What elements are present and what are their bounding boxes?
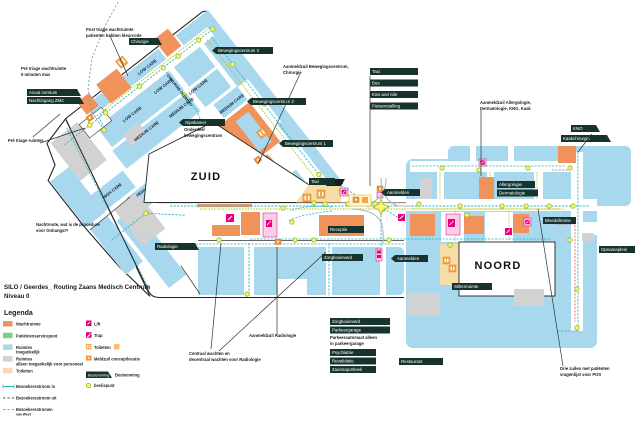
svg-text:Meldzuil conceptlocatie: Meldzuil conceptlocatie [94, 357, 141, 362]
svg-text:Dermatologie: Dermatologie [499, 191, 526, 196]
svg-text:Dermatologie, KNO, Kaak: Dermatologie, KNO, Kaak [480, 106, 531, 111]
svg-text:Restaurant: Restaurant [401, 359, 423, 364]
svg-text:Bezoekersstroom in: Bezoekersstroom in [16, 384, 56, 389]
svg-text:toegankelijk: toegankelijk [16, 350, 40, 355]
svg-text:van West: van West [16, 413, 32, 417]
svg-text:Fietsenstalling: Fietsenstalling [372, 104, 401, 109]
svg-text:Nachtroute, wat is de procedur: Nachtroute, wat is de procedure [36, 222, 100, 227]
svg-text:Post triage wachtruimte: Post triage wachtruimte [86, 27, 134, 32]
svg-text:Taxi: Taxi [311, 179, 319, 184]
svg-text:Receptie: Receptie [330, 227, 348, 232]
svg-text:Bezoekersstroom uit: Bezoekersstroom uit [16, 396, 57, 401]
svg-text:Aanmeldzuil Bewegingscentrum,: Aanmeldzuil Bewegingscentrum, [283, 64, 349, 69]
svg-text:Legenda: Legenda [4, 310, 33, 317]
svg-text:Wachtruimte: Wachtruimte [16, 322, 41, 327]
svg-text:Drie zuilen met patiënten: Drie zuilen met patiënten [560, 366, 610, 371]
svg-text:Zorgboulevard: Zorgboulevard [332, 319, 361, 324]
svg-text:alleen toegankelijk voor perso: alleen toegankelijk voor personeel [16, 361, 83, 366]
svg-text:Bestemming: Bestemming [115, 372, 140, 377]
svg-text:5 minuten max: 5 minuten max [21, 72, 51, 77]
svg-text:Kiss and ride: Kiss and ride [372, 92, 398, 97]
svg-text:Aanmeldzuil Radiologie: Aanmeldzuil Radiologie [249, 333, 297, 338]
svg-text:Chirurgie: Chirurgie [283, 70, 302, 75]
svg-text:Taxi: Taxi [372, 69, 380, 74]
svg-text:Allergologie: Allergologie [499, 182, 523, 187]
svg-text:Pré triage wachtruimte: Pré triage wachtruimte [21, 66, 67, 71]
svg-text:voor Onhangst?: voor Onhangst? [36, 228, 69, 233]
svg-text:Bewegingscentrum 3: Bewegingscentrum 3 [218, 48, 260, 53]
svg-text:Pré triage ruimtes: Pré triage ruimtes [8, 138, 44, 143]
svg-text:Bloedafname: Bloedafname [545, 218, 571, 223]
svg-text:Niveau 0: Niveau 0 [4, 293, 30, 300]
svg-text:NOORD: NOORD [475, 260, 522, 272]
svg-text:Aanmelden: Aanmelden [387, 190, 410, 195]
svg-text:bewegingscentrum: bewegingscentrum [184, 133, 222, 138]
svg-text:Toiletten: Toiletten [94, 345, 111, 350]
svg-text:ZUID: ZUID [191, 171, 221, 183]
svg-text:Parkeergarage: Parkeergarage [332, 328, 362, 333]
svg-text:Lift: Lift [94, 322, 101, 327]
svg-text:Trap: Trap [94, 333, 103, 338]
svg-text:Parkeerautomaat alleen: Parkeerautomaat alleen [330, 335, 377, 340]
svg-text:Bezoekersstromen: Bezoekersstromen [16, 407, 53, 412]
svg-text:Zaansapotheek: Zaansapotheek [332, 367, 363, 372]
svg-text:Aanmeldzuil Allergologie,: Aanmeldzuil Allergologie, [480, 100, 531, 105]
svg-text:Stiltenruimte: Stiltenruimte [454, 284, 479, 289]
svg-text:Patiëntenservicepunt: Patiëntenservicepunt [16, 333, 58, 338]
svg-text:Onderdeel: Onderdeel [184, 127, 205, 132]
svg-text:Bestemming: Bestemming [88, 373, 109, 377]
svg-text:Toiletten: Toiletten [16, 368, 33, 373]
svg-text:Centraal wachten en: Centraal wachten en [189, 351, 230, 356]
svg-text:Aanmelden: Aanmelden [397, 256, 420, 261]
svg-text:Psychiatrie: Psychiatrie [332, 350, 354, 355]
svg-text:Bus: Bus [372, 81, 380, 86]
svg-text:Radiologie: Radiologie [157, 244, 178, 249]
svg-text:Opnameplein: Opnameplein [601, 247, 628, 252]
svg-text:KNO: KNO [573, 126, 583, 131]
svg-text:vragenlijst voor POS: vragenlijst voor POS [560, 372, 601, 377]
svg-text:SILO / Geerdes_ Routing Zaans: SILO / Geerdes_ Routing Zaans Medisch Ce… [4, 284, 151, 291]
svg-text:Kaakchirurgie: Kaakchirurgie [563, 136, 590, 141]
svg-text:Bewegingscentrum 1: Bewegingscentrum 1 [285, 141, 327, 146]
svg-text:Gipskamer: Gipskamer [185, 120, 207, 125]
svg-text:Chirurgie: Chirurgie [131, 39, 149, 44]
svg-text:decentraal wachten voor Radiol: decentraal wachten voor Radiologie [189, 357, 261, 362]
svg-text:patienten hebben kleurcode: patienten hebben kleurcode [86, 33, 142, 38]
svg-text:Zorgboulevard: Zorgboulevard [324, 255, 353, 260]
svg-text:in parkeergarage: in parkeergarage [330, 341, 364, 346]
svg-text:Acuut centrum: Acuut centrum [29, 90, 58, 95]
svg-text:beslispunt: beslispunt [94, 383, 115, 388]
svg-text:Nachtingang ZMC: Nachtingang ZMC [29, 98, 64, 103]
svg-text:Revalidatie: Revalidatie [332, 359, 354, 364]
